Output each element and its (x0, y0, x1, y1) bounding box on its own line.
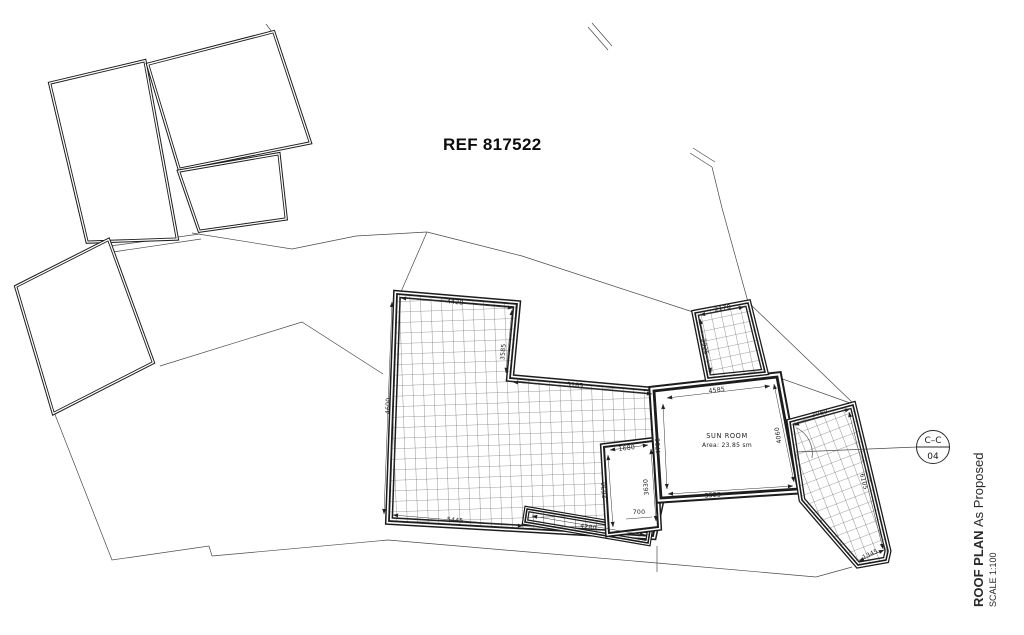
section-marker-label: C–C (924, 436, 941, 446)
title-block: ROOF PLAN As Proposed SCALE 1:100 (971, 453, 998, 607)
dim-main-top: 4420 (447, 298, 464, 306)
dim-main-diagonal: 5185 (567, 381, 584, 389)
building-b (149, 33, 309, 168)
dim-stair-left: 2630 (600, 482, 608, 499)
sun-room-area: Area: 23.85 sm (702, 442, 752, 449)
plan-title: ROOF PLAN (971, 530, 986, 607)
plan-scale: SCALE 1:100 (988, 552, 998, 607)
reference-label: REF 817522 (443, 135, 541, 154)
building-d (17, 241, 152, 412)
section-marker-number: 04 (927, 452, 939, 462)
dim-stair-right: 3630 (642, 479, 650, 496)
dim-sunroom-bottom: 5525 (704, 491, 721, 499)
sun-room-name: SUN ROOM (706, 432, 748, 440)
plan-status: As Proposed (971, 453, 986, 527)
roof-plan-drawing: 4420 3585 4600 5185 5445 4280 1680 2630 … (0, 0, 1024, 635)
dim-main-left: 4600 (385, 398, 393, 415)
dim-sunroom-left: 4750 (655, 438, 663, 455)
dim-stair-offset: 700 (633, 509, 645, 516)
roof-wing-hatch (790, 405, 888, 565)
dim-main-right: 3585 (499, 343, 507, 360)
dim-main-bottom: 5445 (447, 516, 464, 524)
